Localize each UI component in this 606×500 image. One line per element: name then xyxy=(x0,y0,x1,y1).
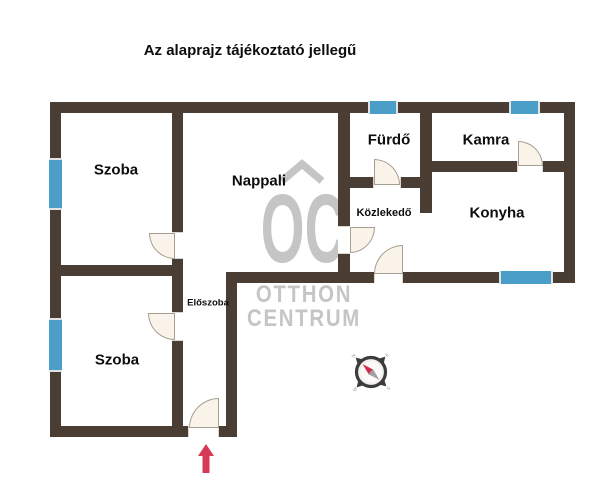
window-furdo xyxy=(368,101,398,114)
room-label-nappali: Nappali xyxy=(232,173,286,190)
window-kamra xyxy=(509,101,540,114)
window-konyha xyxy=(499,271,553,284)
room-label-kamra: Kamra xyxy=(463,132,510,149)
window-szoba-bottom xyxy=(49,318,62,372)
compass-icon: N E S W xyxy=(345,346,397,398)
room-label-kozlekedo: Közlekedő xyxy=(356,207,411,219)
window-szoba-top xyxy=(49,158,62,210)
door-arc-kamra xyxy=(518,141,543,166)
room-label-konyha: Konyha xyxy=(469,205,524,222)
watermark-centrum: CENTRUM xyxy=(177,307,432,331)
room-label-eloszoba: Előszoba xyxy=(187,298,229,309)
wall-furdo-kamra xyxy=(420,102,432,213)
room-label-szoba-top: Szoba xyxy=(94,162,138,179)
compass-label-n: N xyxy=(351,353,357,359)
floor-plan-image: Az alaprajz tájékoztató jellegű OC OTTHO… xyxy=(0,0,606,500)
door-arc-szoba-bottom xyxy=(148,313,175,340)
door-arc-szoba-top xyxy=(149,233,175,259)
disclaimer-title: Az alaprajz tájékoztató jellegű xyxy=(144,42,357,59)
room-label-furdo: Fürdő xyxy=(368,132,411,149)
wall-nappali-right xyxy=(338,102,350,283)
door-opening-nappali-kozlekedo xyxy=(338,226,350,254)
wall-szoba-divider xyxy=(50,265,183,276)
wall-right xyxy=(564,102,575,283)
wall-kamra-bottom xyxy=(420,161,575,172)
room-label-szoba-bottom: Szoba xyxy=(95,352,139,369)
compass-label-s: S xyxy=(386,386,392,392)
door-arc-entrance xyxy=(189,398,219,428)
entrance-arrow-icon xyxy=(198,444,214,473)
wall-top xyxy=(50,102,575,113)
door-arc-furdo xyxy=(374,159,400,185)
